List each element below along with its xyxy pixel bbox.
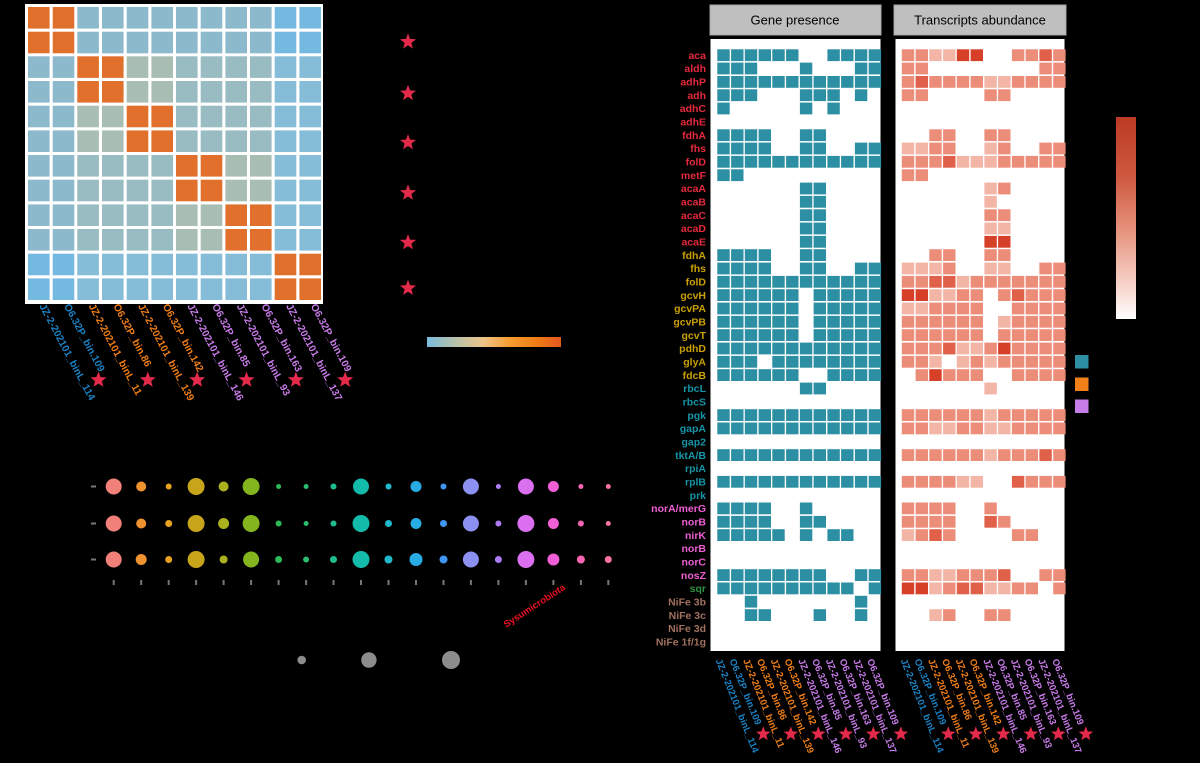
svg-text:norA/merG: norA/merG xyxy=(651,503,706,515)
svg-text:NiFe 3d: NiFe 3d xyxy=(668,623,706,635)
svg-text:rbcL: rbcL xyxy=(683,383,706,395)
svg-text:adhC: adhC xyxy=(680,103,707,115)
svg-text:adhP: adhP xyxy=(680,77,706,89)
svg-text:glyA: glyA xyxy=(683,357,706,369)
svg-text:prk: prk xyxy=(690,490,707,502)
svg-text:gap2: gap2 xyxy=(681,437,706,449)
svg-text:rbcS: rbcS xyxy=(683,397,706,409)
svg-text:norB: norB xyxy=(682,543,707,555)
svg-text:gcvT: gcvT xyxy=(681,330,706,342)
svg-text:folD: folD xyxy=(686,157,707,169)
svg-text:gcvPA: gcvPA xyxy=(674,303,706,315)
svg-text:folD: folD xyxy=(686,277,707,289)
svg-text:adhE: adhE xyxy=(680,117,706,129)
svg-text:tktA/B: tktA/B xyxy=(675,450,706,462)
svg-text:fdhA: fdhA xyxy=(682,130,706,142)
svg-text:norC: norC xyxy=(682,556,707,568)
svg-text:gapA: gapA xyxy=(680,423,707,435)
svg-text:fhs: fhs xyxy=(690,263,706,275)
svg-text:nirK: nirK xyxy=(685,530,706,542)
svg-text:acaC: acaC xyxy=(681,210,707,222)
svg-text:nosZ: nosZ xyxy=(681,570,707,582)
svg-text:metF: metF xyxy=(681,170,707,182)
svg-text:acaA: acaA xyxy=(681,183,707,195)
svg-text:adh: adh xyxy=(687,90,706,102)
svg-text:NiFe 3b: NiFe 3b xyxy=(668,596,706,608)
svg-text:fdhA: fdhA xyxy=(682,250,706,262)
svg-text:fhs: fhs xyxy=(690,143,706,155)
svg-text:gcvPB: gcvPB xyxy=(673,317,706,329)
svg-text:acaB: acaB xyxy=(681,197,707,209)
svg-text:pdhD: pdhD xyxy=(679,343,706,355)
svg-text:pgk: pgk xyxy=(687,410,706,422)
svg-text:NiFe 3c: NiFe 3c xyxy=(669,610,707,622)
svg-text:sqr: sqr xyxy=(690,583,706,595)
svg-text:gcvH: gcvH xyxy=(680,290,706,302)
svg-text:acaD: acaD xyxy=(681,223,707,235)
svg-text:aca: aca xyxy=(688,50,706,62)
svg-text:NiFe 1f/1g: NiFe 1f/1g xyxy=(656,636,706,648)
svg-text:Gene presence: Gene presence xyxy=(751,13,840,28)
svg-text:rpiA: rpiA xyxy=(685,463,706,475)
svg-text:Transcripts abundance: Transcripts abundance xyxy=(914,13,1046,28)
svg-text:acaE: acaE xyxy=(681,237,706,249)
svg-text:fdcB: fdcB xyxy=(683,370,707,382)
svg-text:rplB: rplB xyxy=(685,477,706,489)
svg-text:aldh: aldh xyxy=(684,63,706,75)
svg-text:norB: norB xyxy=(682,517,707,529)
